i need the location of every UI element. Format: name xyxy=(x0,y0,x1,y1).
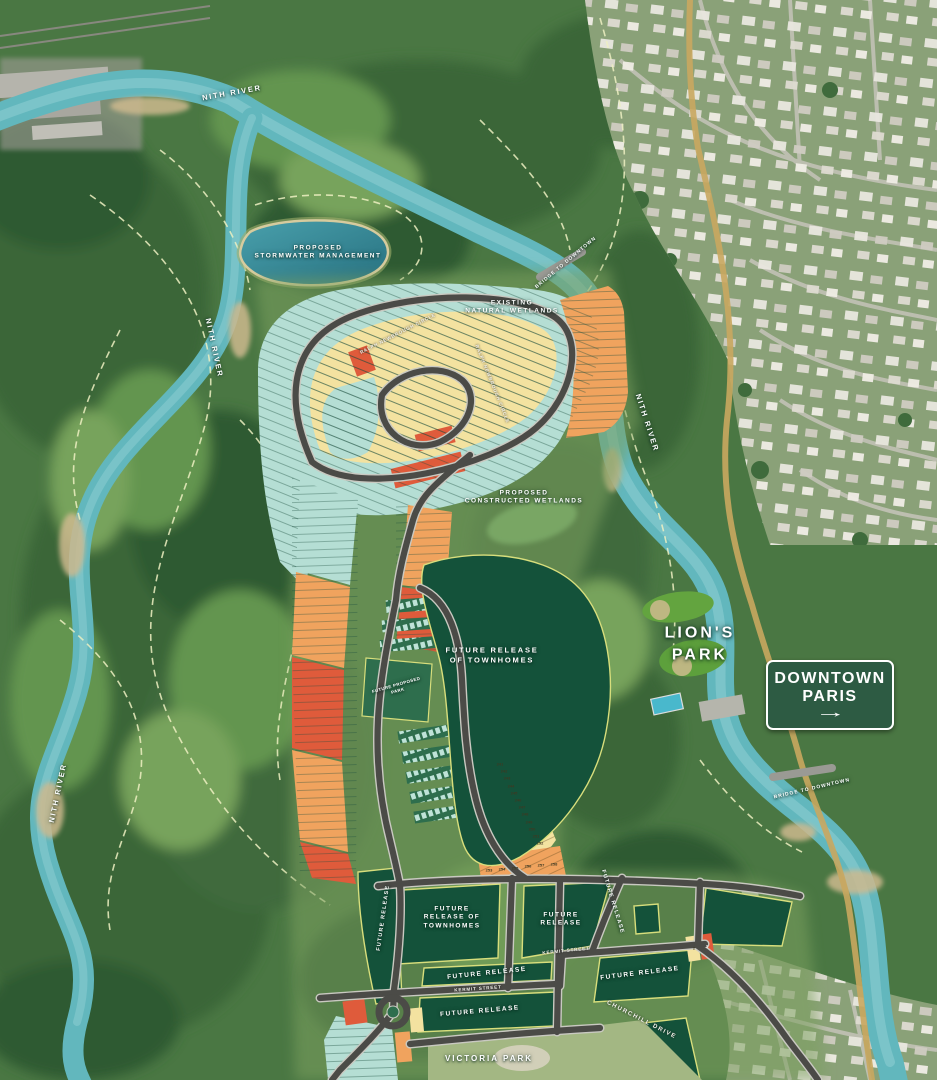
lot-number: 248 xyxy=(522,812,529,817)
lot-number: 258 xyxy=(551,862,558,867)
downtown-paris-sign: DOWNTOWN PARIS → xyxy=(766,660,894,730)
label-victoria-park: VICTORIA PARK xyxy=(445,1054,533,1064)
sign-line2: PARIS xyxy=(802,688,857,706)
label-lions-park: LION'S PARK xyxy=(665,622,736,665)
lot-number: 244 xyxy=(508,784,515,789)
label-existing-natural-wetlands: EXISTING NATURAL WETLANDS xyxy=(465,300,558,317)
lot-number: 251 xyxy=(533,834,540,839)
lot-number: 256 xyxy=(525,864,532,869)
site-plan-map: NITH RIVER NITH RIVER NITH RIVER NITH RI… xyxy=(0,0,937,1080)
label-future-release-townhomes-mid: FUTURE RELEASE OF TOWNHOMES xyxy=(445,645,538,665)
lot-number: 250 xyxy=(529,827,536,832)
lot-number: 253 xyxy=(486,868,493,873)
label-constructed-wetlands: PROPOSED CONSTRUCTED WETLANDS xyxy=(465,490,583,507)
lot-number: 242 xyxy=(501,769,508,774)
label-stormwater-management: PROPOSED STORMWATER MANAGEMENT xyxy=(255,245,382,262)
lot-number: 2 xyxy=(693,946,695,951)
right-arrow-icon: → xyxy=(814,706,846,720)
lot-number: 247 xyxy=(519,805,526,810)
lot-number: 252 xyxy=(537,841,544,846)
lot-number: 245 xyxy=(511,791,518,796)
label-future-release-two-line: FUTURE RELEASE xyxy=(540,912,581,929)
sign-line1: DOWNTOWN xyxy=(774,670,885,688)
lot-number: 243 xyxy=(504,776,511,781)
lot-number: 257 xyxy=(538,863,545,868)
lot-number: 246 xyxy=(515,798,522,803)
lot-number: 241 xyxy=(497,762,504,767)
label-future-release-townhomes-bottom: FUTURE RELEASE OF TOWNHOMES xyxy=(423,905,480,930)
lot-number: 255 xyxy=(512,866,519,871)
lot-number: 254 xyxy=(499,867,506,872)
lot-number: 249 xyxy=(526,820,533,825)
lot-number: 1 xyxy=(706,944,708,949)
